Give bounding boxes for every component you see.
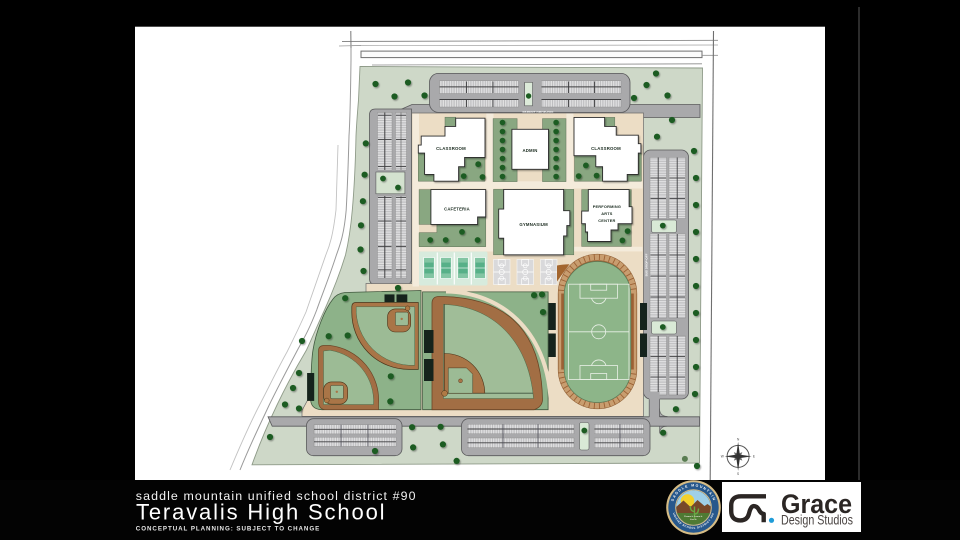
svg-text:PERFORMING: PERFORMING (593, 204, 621, 209)
svg-text:CLASSROOM: CLASSROOM (591, 146, 621, 151)
svg-text:S: S (737, 472, 739, 476)
svg-text:BUS DROP-OFF: BUS DROP-OFF (645, 253, 649, 276)
svg-text:W: W (721, 455, 724, 459)
svg-text:Live it.: Live it. (690, 518, 697, 521)
svg-text:CAFETERIA: CAFETERIA (444, 207, 470, 212)
svg-text:ADMIN: ADMIN (522, 148, 537, 153)
svg-text:E: E (753, 455, 755, 459)
svg-text:GYMNASIUM: GYMNASIUM (519, 222, 548, 227)
svg-text:CONCEPTUAL PLANNING: SUBJECT T: CONCEPTUAL PLANNING: SUBJECT TO CHANGE (136, 525, 320, 532)
svg-text:Teravalis High School: Teravalis High School (136, 500, 386, 525)
svg-text:CENTER: CENTER (598, 218, 615, 223)
svg-text:Dream it. Learn it.: Dream it. Learn it. (684, 515, 703, 518)
svg-text:Design Studios: Design Studios (781, 513, 853, 528)
svg-text:ARTS: ARTS (601, 211, 613, 216)
svg-text:CLASSROOM: CLASSROOM (436, 146, 466, 151)
